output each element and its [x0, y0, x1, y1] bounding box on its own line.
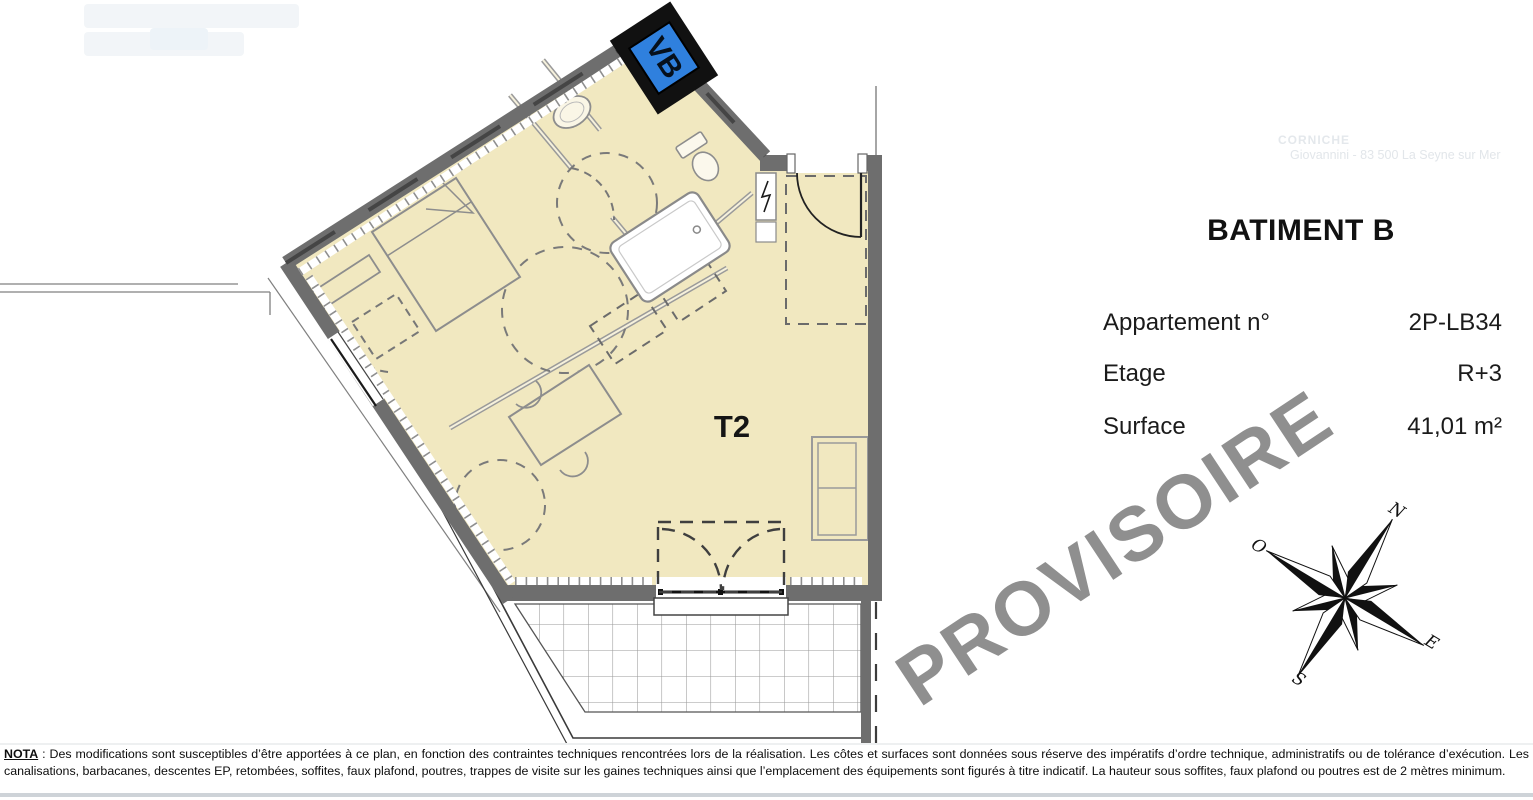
info-row-surface: Surface 41,01 m² [1103, 413, 1502, 441]
building-title: BATIMENT B [1100, 214, 1502, 248]
compass-north-label: N [1384, 498, 1409, 524]
info-row-floor: Etage R+3 [1103, 360, 1502, 388]
compass-long-arms [1219, 472, 1471, 724]
unit-type-label: T2 [714, 409, 750, 444]
electrical-closet [756, 173, 776, 242]
compass-west-label: O [1247, 535, 1269, 559]
apartment-value: 2P-LB34 [1409, 309, 1502, 337]
apartment-label: Appartement n° [1103, 309, 1270, 337]
sofa [812, 437, 868, 540]
door-sill [654, 598, 788, 615]
surface-value: 41,01 m² [1407, 413, 1502, 441]
surface-label: Surface [1103, 413, 1186, 441]
nota-label: NOTA [4, 747, 38, 761]
nota-body: : Des modifications sont susceptibles d’… [4, 747, 1529, 778]
balcony-grid [515, 604, 861, 712]
compass-east-label: E [1420, 630, 1442, 654]
floor-value: R+3 [1457, 360, 1502, 388]
info-row-apartment: Appartement n° 2P-LB34 [1103, 309, 1502, 337]
floorplan-sheet: VB T2 N O [0, 0, 1533, 800]
faded-header-line1: CORNICHE [1278, 133, 1350, 147]
compass-south-label: S [1288, 668, 1308, 691]
nota-disclaimer: NOTA : Des modifications sont susceptibl… [4, 746, 1529, 779]
floor-label: Etage [1103, 360, 1166, 388]
nota-divider [0, 743, 1533, 745]
compass-rose: N O E S [1219, 472, 1471, 724]
sheet-bottom-edge [0, 793, 1533, 797]
faded-header-line2: Giovannini - 83 500 La Seyne sur Mer [1290, 148, 1501, 162]
